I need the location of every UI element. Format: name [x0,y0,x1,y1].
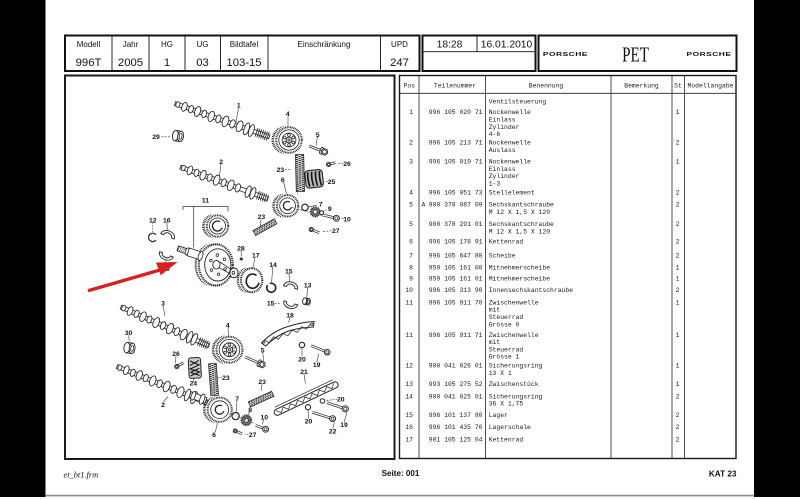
svg-text:19: 19 [313,362,321,369]
svg-text:16: 16 [405,424,413,431]
svg-text:20: 20 [298,356,306,363]
svg-text:996 105 178 91: 996 105 178 91 [429,239,483,246]
svg-text:6: 6 [281,177,285,184]
svg-text:Einlass: Einlass [489,166,516,173]
svg-text:5: 5 [409,221,413,228]
svg-text:23: 23 [277,167,285,174]
svg-text:2: 2 [676,140,680,147]
svg-text:12: 12 [405,363,413,370]
svg-text:Ventilsteuerung: Ventilsteuerung [489,99,547,106]
svg-text:2: 2 [676,221,680,228]
svg-text:Sechskantschraube: Sechskantschraube [489,202,554,209]
svg-text:Seite: 001: Seite: 001 [382,469,420,478]
svg-text:1: 1 [676,159,680,166]
svg-text:900 378 291 01: 900 378 291 01 [429,221,483,228]
svg-text:M 12 X 1,5 X 120: M 12 X 1,5 X 120 [489,209,551,216]
svg-text:Zwischenwelle: Zwischenwelle [489,299,539,306]
svg-text:A: A [422,202,426,209]
svg-text:03: 03 [196,57,209,69]
svg-text:14: 14 [269,262,277,269]
svg-text:Zylinder: Zylinder [489,173,520,180]
svg-text:Sicherungsring: Sicherungsring [489,363,543,370]
svg-text:Mitnehmerscheibe: Mitnehmerscheibe [489,275,551,282]
svg-text:1: 1 [164,57,170,69]
svg-text:18: 18 [286,312,294,319]
svg-text:mit: mit [489,307,501,314]
svg-text:959 105 161 00: 959 105 161 00 [429,265,483,272]
svg-text:23: 23 [258,214,266,221]
svg-text:103-15: 103-15 [226,57,261,69]
svg-text:Kettenrad: Kettenrad [489,239,524,246]
svg-text:993 105 275 52: 993 105 275 52 [429,381,483,388]
svg-text:2: 2 [676,239,680,246]
svg-text:11: 11 [405,332,413,339]
svg-text:2: 2 [676,189,680,196]
svg-text:Modellangabe: Modellangabe [687,82,733,89]
svg-text:36 X 1,75: 36 X 1,75 [489,401,524,408]
svg-text:27: 27 [249,432,257,439]
svg-text:7: 7 [409,253,413,260]
svg-text:23: 23 [222,375,230,382]
svg-text:KAT 23: KAT 23 [709,469,737,478]
svg-text:9: 9 [409,275,413,282]
svg-text:996 105 019 71: 996 105 019 71 [429,159,483,166]
svg-text:Bildtafel: Bildtafel [230,40,259,49]
svg-text:4-6: 4-6 [489,131,501,138]
svg-text:25: 25 [328,179,336,186]
svg-text:3: 3 [409,159,413,166]
svg-text:Jahr: Jahr [123,40,139,49]
svg-text:4: 4 [409,189,413,196]
svg-text:Sicherungsring: Sicherungsring [489,393,543,400]
svg-text:Sechskantschraube: Sechskantschraube [489,221,554,228]
svg-text:1: 1 [676,275,680,282]
svg-text:996 105 647 80: 996 105 647 80 [429,253,483,260]
svg-text:996 105 911 71: 996 105 911 71 [429,332,483,339]
svg-text:Scheibe: Scheibe [489,253,516,260]
svg-text:Steuerrad: Steuerrad [489,314,524,321]
svg-text:Zwischenstück: Zwischenstück [489,381,539,388]
svg-text:mit: mit [489,339,501,346]
svg-text:29: 29 [152,134,160,141]
svg-text:2: 2 [676,412,680,419]
svg-text:Zylinder: Zylinder [489,124,520,131]
svg-text:3: 3 [161,301,165,308]
svg-text:2: 2 [676,253,680,260]
svg-text:996 101 137 80: 996 101 137 80 [429,412,483,419]
svg-text:247: 247 [390,57,409,69]
svg-text:HG: HG [161,40,173,49]
svg-text:17: 17 [252,253,260,260]
svg-text:Innensechskantschraube: Innensechskantschraube [489,287,574,294]
svg-text:9: 9 [328,206,332,213]
svg-text:Lager: Lager [489,412,508,419]
svg-text:8: 8 [409,265,413,272]
svg-text:Grösse 0: Grösse 0 [489,321,520,328]
svg-text:11: 11 [405,299,413,306]
svg-text:1: 1 [237,103,241,110]
svg-text:16.01.2010: 16.01.2010 [481,40,533,51]
svg-text:Nockenwelle: Nockenwelle [489,140,531,147]
svg-text:996 105 213 71: 996 105 213 71 [429,140,483,147]
svg-text:2: 2 [219,159,223,166]
svg-text:5: 5 [409,202,413,209]
svg-text:PORSCHE: PORSCHE [543,52,588,57]
svg-text:Teilenummer: Teilenummer [434,82,476,89]
svg-text:996 105 313 90: 996 105 313 90 [429,287,483,294]
svg-text:996 105 020 71: 996 105 020 71 [429,109,483,116]
svg-text:1: 1 [676,109,680,116]
svg-text:2: 2 [676,287,680,294]
svg-text:11: 11 [202,198,209,205]
svg-text:5: 5 [316,132,320,139]
svg-text:Stellelement: Stellelement [489,189,535,196]
svg-text:Mitnehmerscheibe: Mitnehmerscheibe [489,265,551,272]
svg-text:7: 7 [319,201,323,208]
svg-text:2: 2 [409,140,413,147]
svg-text:23: 23 [258,379,266,386]
svg-text:Lagerschale: Lagerschale [489,424,531,431]
svg-text:22: 22 [329,428,337,435]
svg-text:1: 1 [676,363,680,370]
svg-text:959 105 161 01: 959 105 161 01 [429,275,483,282]
svg-text:996 105 051 73: 996 105 051 73 [429,189,483,196]
svg-text:2: 2 [676,436,680,443]
svg-text:15: 15 [405,412,413,419]
svg-text:900 041 026 01: 900 041 026 01 [429,363,483,370]
svg-text:996 101 435 70: 996 101 435 70 [429,424,483,431]
svg-text:10: 10 [405,287,413,294]
svg-text:10: 10 [343,216,351,223]
svg-text:Kettenrad: Kettenrad [489,436,524,443]
svg-text:1: 1 [676,381,680,388]
svg-text:Einschränkung: Einschränkung [298,40,351,49]
svg-text:M 12 X 1,5 X 120: M 12 X 1,5 X 120 [489,228,551,235]
svg-text:2005: 2005 [118,57,143,69]
svg-text:4: 4 [286,111,290,118]
svg-text:901 105 125 04: 901 105 125 04 [429,436,483,443]
svg-text:Pos: Pos [404,82,416,89]
svg-text:996 105 911 70: 996 105 911 70 [429,299,483,306]
svg-text:26: 26 [343,161,351,168]
svg-text:18:28: 18:28 [437,40,463,51]
svg-text:900 378 087 09: 900 378 087 09 [429,202,483,209]
svg-text:2: 2 [676,393,680,400]
svg-text:UG: UG [197,40,209,49]
svg-text:1: 1 [676,299,680,306]
svg-text:Nockenwelle: Nockenwelle [489,159,531,166]
svg-text:10: 10 [261,415,269,422]
svg-text:13 X 1: 13 X 1 [489,370,512,377]
svg-text:1-3: 1-3 [489,181,501,188]
svg-text:et_bt1.frm: et_bt1.frm [64,471,99,480]
svg-text:14: 14 [405,393,413,400]
svg-text:17: 17 [405,436,413,443]
svg-text:8: 8 [248,407,252,414]
svg-text:15: 15 [267,301,275,308]
svg-text:996T: 996T [76,57,102,69]
svg-text:7: 7 [235,396,239,403]
svg-text:20: 20 [305,418,313,425]
svg-text:6: 6 [409,239,413,246]
svg-text:Einlass: Einlass [489,117,516,124]
svg-text:4: 4 [226,323,230,330]
svg-text:1: 1 [409,109,413,116]
svg-text:2: 2 [676,424,680,431]
svg-text:Zwischenwelle: Zwischenwelle [489,332,539,339]
svg-text:900 041 025 01: 900 041 025 01 [429,393,483,400]
svg-text:Bemerkung: Bemerkung [624,82,659,89]
svg-text:Auslass: Auslass [489,147,516,154]
svg-text:Steuerrad: Steuerrad [489,346,524,353]
svg-text:13: 13 [405,381,413,388]
svg-text:St: St [674,82,682,89]
svg-text:1: 1 [676,265,680,272]
svg-text:6: 6 [212,432,216,439]
svg-text:Benennung: Benennung [529,82,564,89]
svg-text:PORSCHE: PORSCHE [687,52,732,57]
svg-text:Nockenwelle: Nockenwelle [489,109,531,116]
svg-text:2: 2 [161,402,165,409]
svg-text:20: 20 [337,397,345,404]
svg-text:2: 2 [676,202,680,209]
svg-text:Grösse 1: Grösse 1 [489,354,520,361]
svg-text:UPD: UPD [391,40,408,49]
svg-text:Modell: Modell [77,40,101,49]
svg-text:19: 19 [340,422,348,429]
svg-text:PET: PET [622,43,649,66]
svg-text:1: 1 [676,332,680,339]
svg-text:27: 27 [332,228,340,235]
